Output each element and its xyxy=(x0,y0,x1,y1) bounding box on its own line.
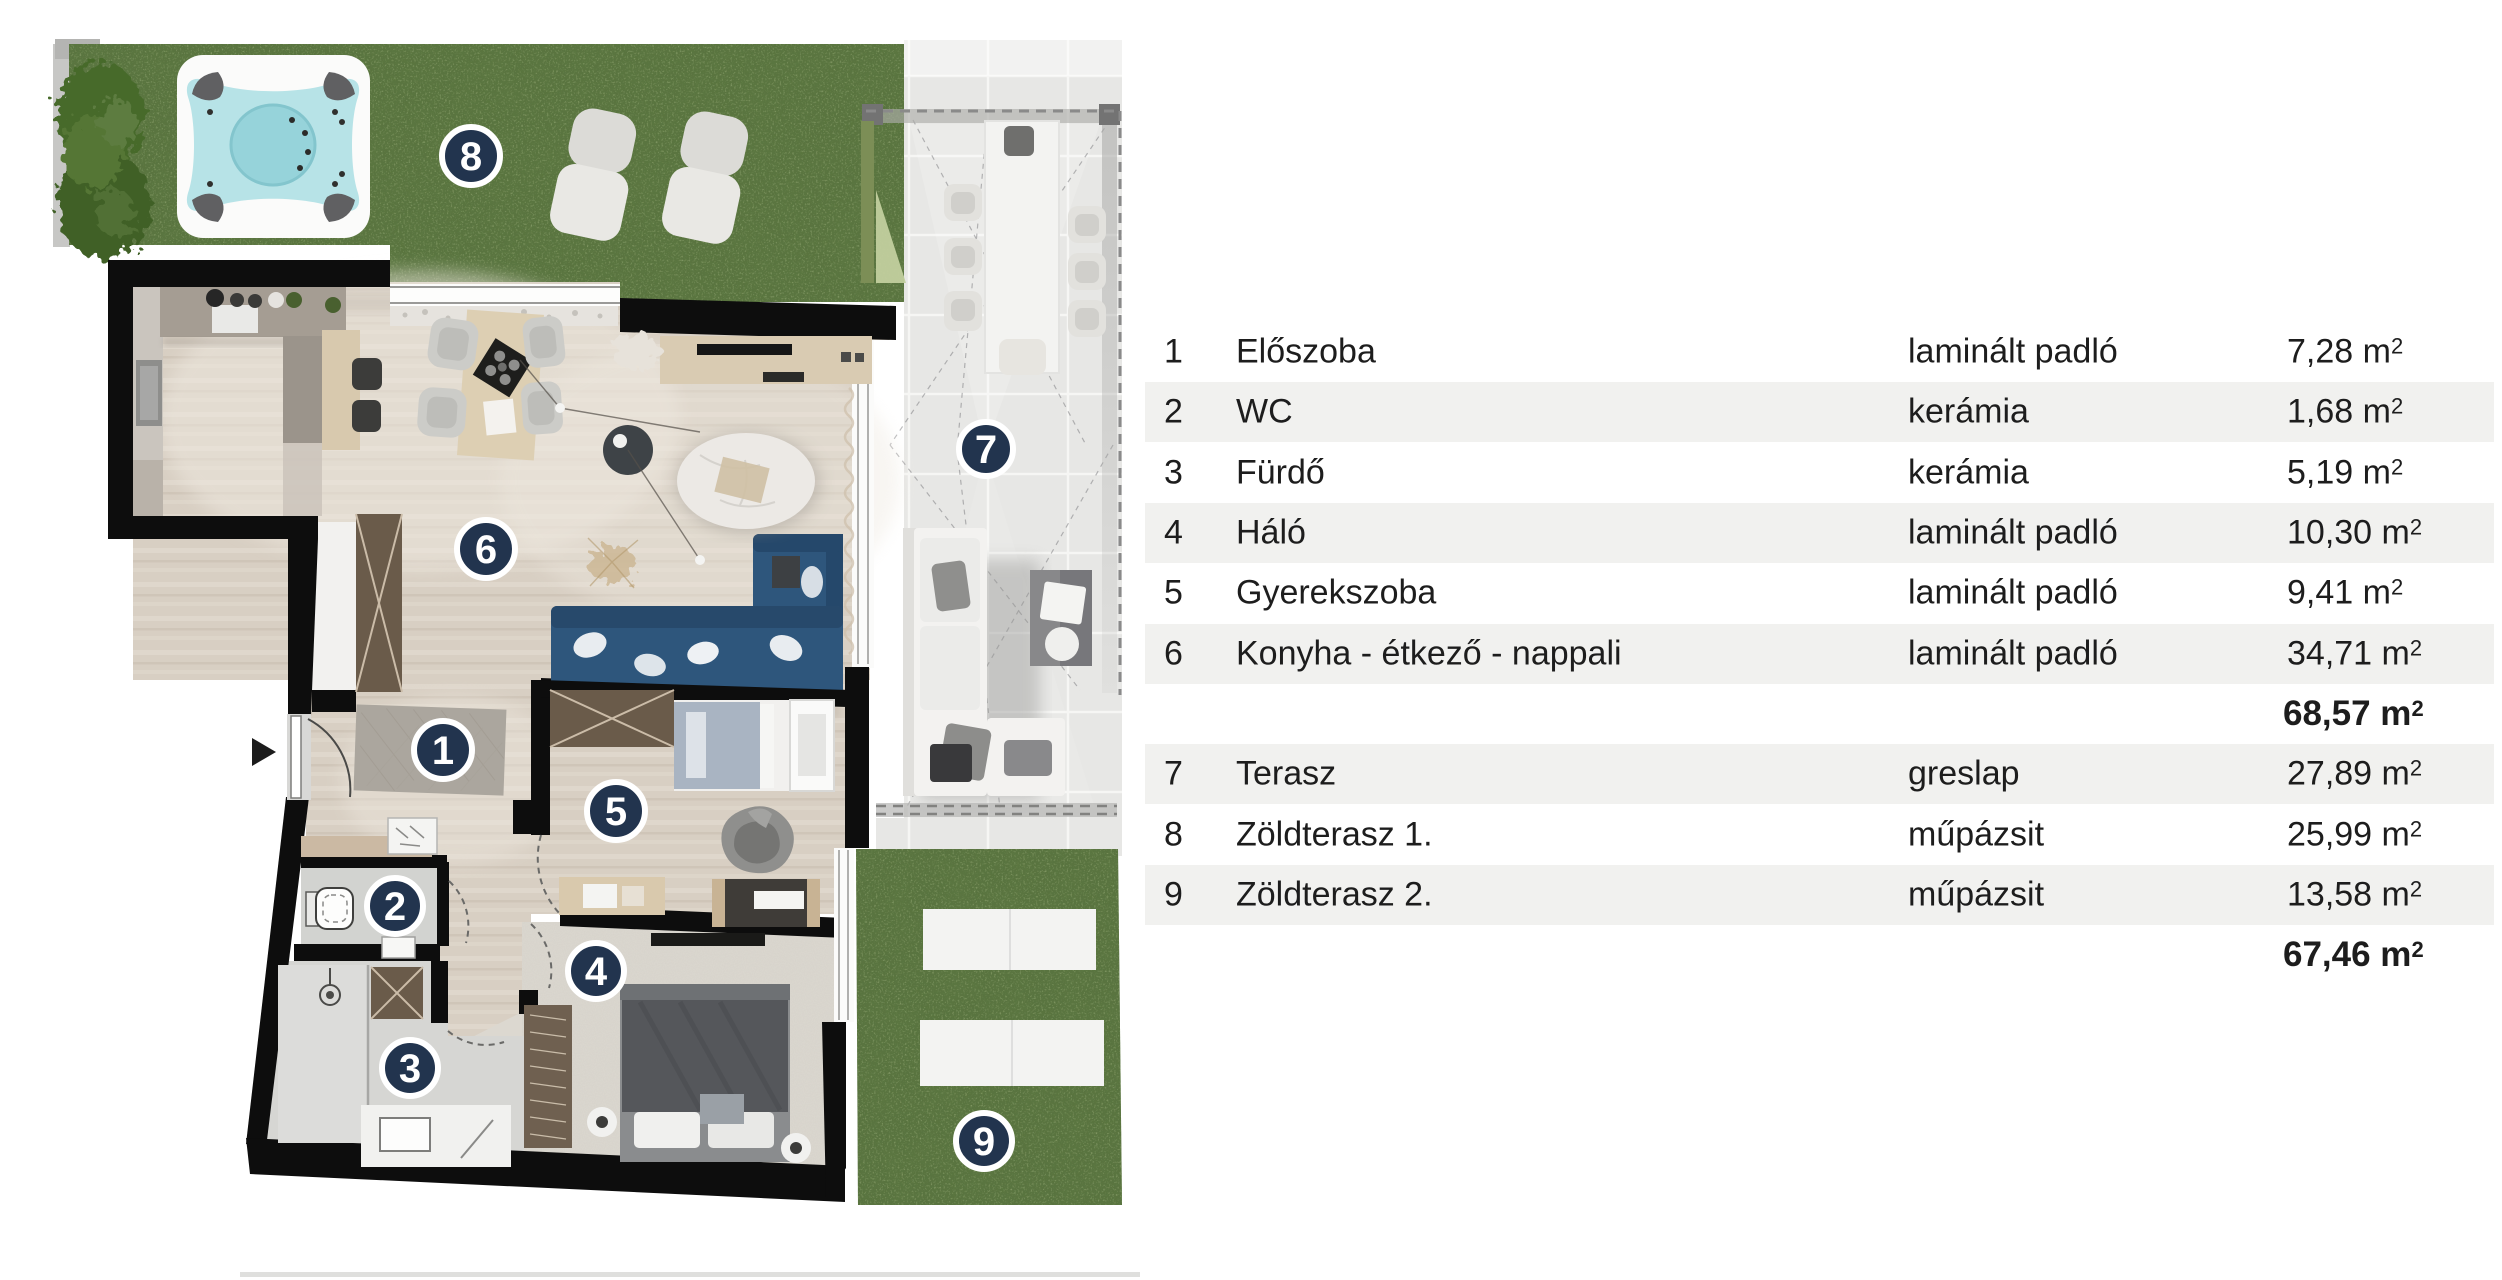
svg-text:7: 7 xyxy=(975,428,997,472)
svg-text:8: 8 xyxy=(460,135,482,179)
svg-text:4: 4 xyxy=(585,950,608,994)
svg-text:6: 6 xyxy=(475,528,497,572)
svg-text:5: 5 xyxy=(605,790,627,834)
svg-text:2: 2 xyxy=(384,885,406,929)
svg-text:9: 9 xyxy=(973,1120,995,1164)
svg-text:3: 3 xyxy=(399,1047,421,1091)
svg-text:1: 1 xyxy=(432,729,454,773)
